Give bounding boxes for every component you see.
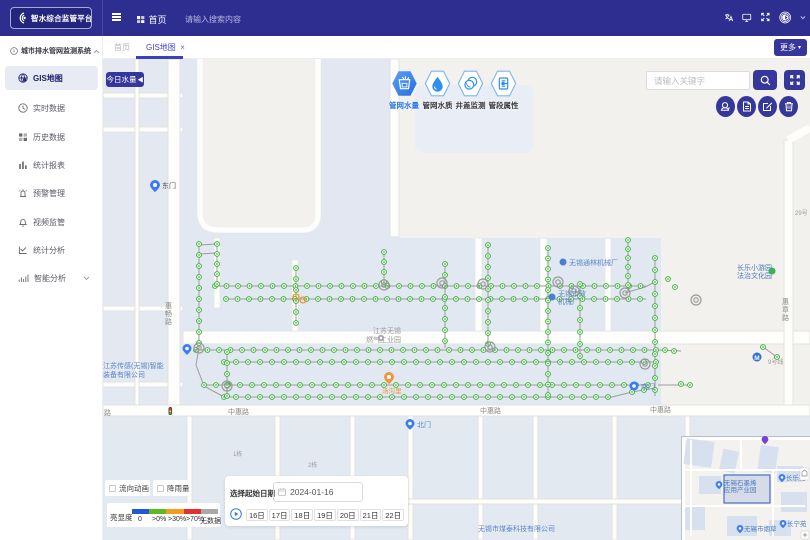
svg-text:东门: 东门 xyxy=(162,181,176,190)
svg-text:无锡通林机械厂: 无锡通林机械厂 xyxy=(569,258,618,267)
svg-text:机械厂: 机械厂 xyxy=(558,297,579,306)
svg-text:应用产业园: 应用产业园 xyxy=(724,485,757,494)
svg-text:江苏传感(无锡)智能: 江苏传感(无锡)智能 xyxy=(103,361,164,370)
svg-text:2栋: 2栋 xyxy=(308,461,317,469)
svg-text:北门: 北门 xyxy=(417,420,431,429)
svg-text:M: M xyxy=(754,355,759,362)
svg-text:法治文化园: 法治文化园 xyxy=(737,271,772,280)
svg-text:无锡市政: 无锡市政 xyxy=(558,289,586,298)
svg-text:9号线: 9号线 xyxy=(768,358,783,366)
svg-text:惠畅路: 惠畅路 xyxy=(165,301,173,326)
svg-text:中惠路: 中惠路 xyxy=(228,407,249,416)
svg-text:无锡市烟草: 无锡市烟草 xyxy=(744,524,777,533)
svg-text:1栋: 1栋 xyxy=(233,450,242,458)
svg-text:中惠路: 中惠路 xyxy=(650,405,671,414)
svg-text:惠章路: 惠章路 xyxy=(782,297,790,322)
svg-text:装备有限公司: 装备有限公司 xyxy=(103,370,145,379)
svg-text:南门: 南门 xyxy=(641,382,655,391)
svg-text:路: 路 xyxy=(104,408,111,417)
svg-text:29号: 29号 xyxy=(795,210,808,217)
svg-text:无锡石墨烯: 无锡石墨烯 xyxy=(724,478,757,487)
svg-text:长宁苑: 长宁苑 xyxy=(787,519,807,528)
svg-text:无锡市煤泰科技有限公司: 无锡市煤泰科技有限公司 xyxy=(478,524,555,533)
svg-text:长乐小游园: 长乐小游园 xyxy=(737,263,772,272)
svg-text:中惠路: 中惠路 xyxy=(480,406,501,415)
svg-text:汤沟里: 汤沟里 xyxy=(382,386,402,395)
svg-text:江苏无锡: 江苏无锡 xyxy=(373,326,401,335)
